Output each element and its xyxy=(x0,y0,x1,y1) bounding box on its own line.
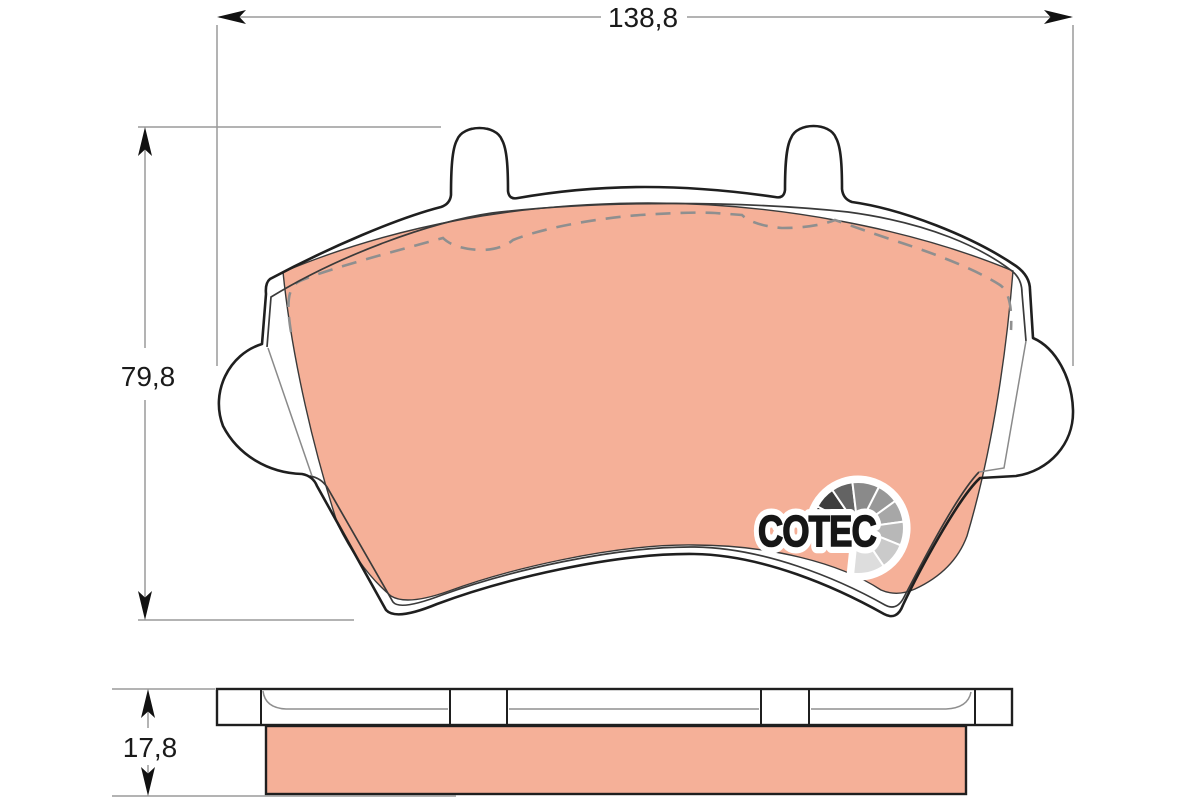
side-backing-plate xyxy=(217,689,1012,725)
thickness-dimension-label: 17,8 xyxy=(123,732,178,763)
brake-pad-front-view: COTEC COTEC xyxy=(219,126,1073,616)
side-friction-material xyxy=(266,726,966,794)
cotec-logo-text: COTEC xyxy=(758,507,876,556)
brake-pad-side-view xyxy=(217,689,1012,794)
width-dimension-label: 138,8 xyxy=(608,2,678,33)
height-dimension-label: 79,8 xyxy=(121,361,176,392)
brake-pad-technical-drawing: COTEC COTEC xyxy=(0,0,1200,800)
technical-drawing-page: COTEC COTEC xyxy=(0,0,1200,800)
